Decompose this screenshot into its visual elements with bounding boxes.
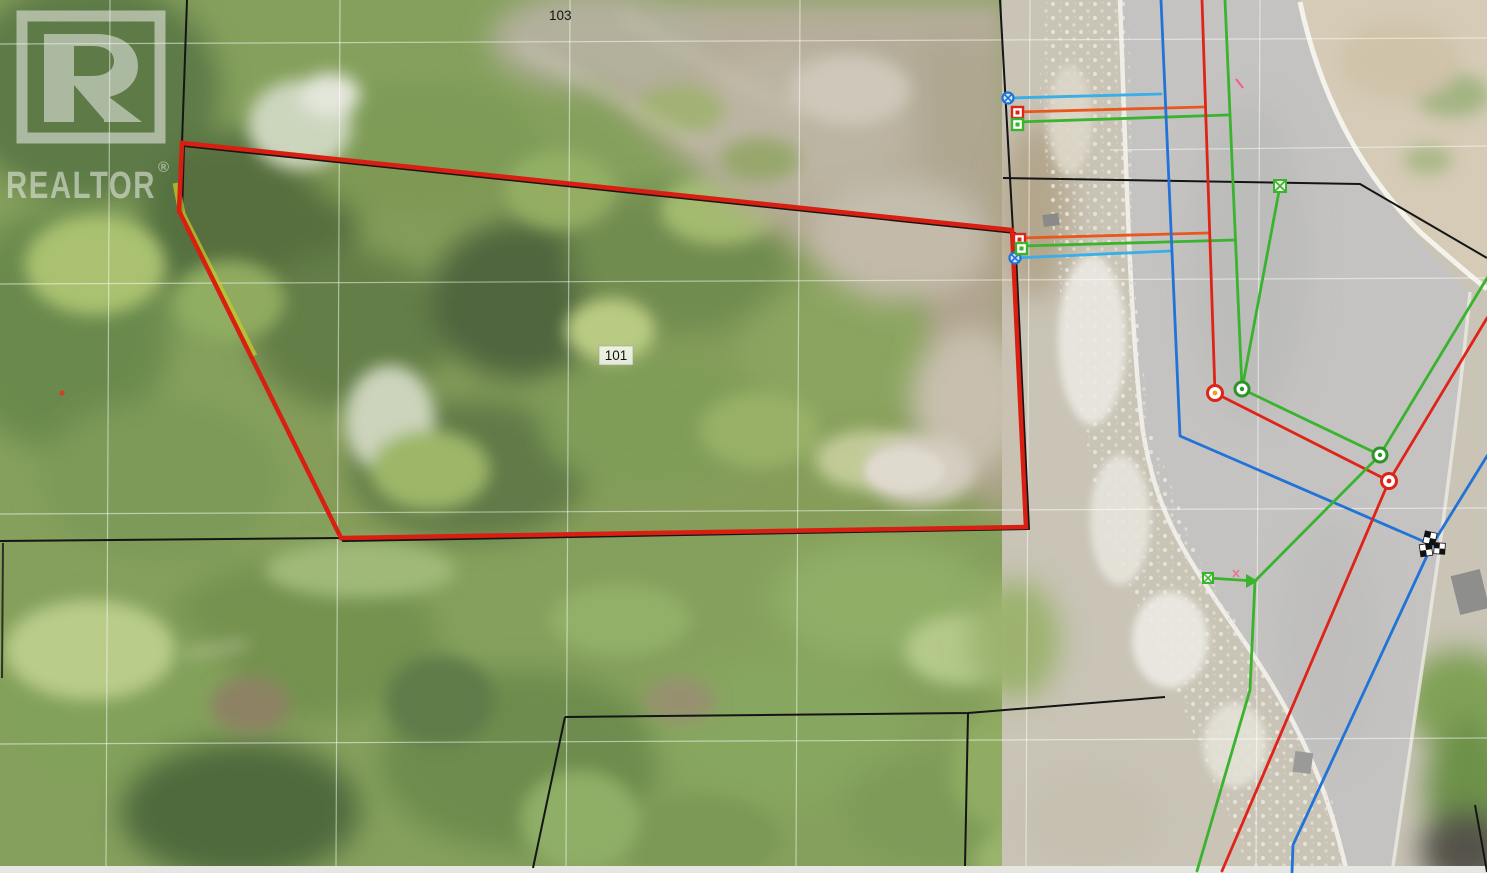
red-circle-node-marker	[1208, 386, 1223, 401]
road-patch	[1293, 751, 1314, 774]
green-x-square-marker	[1274, 180, 1286, 192]
parcel-label-101: 101	[599, 346, 633, 365]
blue-circle-x-marker	[1003, 93, 1014, 104]
green-circle-node-marker	[1373, 448, 1387, 462]
aerial-map-image: 103 101 REALTOR ®	[0, 0, 1487, 873]
green-square-marker	[1012, 119, 1023, 130]
parcel-label-103: 103	[549, 8, 572, 23]
green-circle-node-marker	[1235, 382, 1249, 396]
realtor-registered-symbol: ®	[158, 159, 169, 176]
red-square-marker	[1012, 107, 1023, 118]
green-square-marker	[1016, 243, 1027, 254]
photo-edge-strip	[0, 866, 1487, 873]
realtor-watermark-text: REALTOR	[6, 165, 156, 207]
utility-pad	[1042, 213, 1060, 227]
red-circle-node-marker	[1382, 474, 1397, 489]
green-x-square-marker	[1203, 573, 1213, 583]
red-dot-mark	[59, 390, 64, 395]
parcel-label-101-text: 101	[605, 348, 628, 363]
